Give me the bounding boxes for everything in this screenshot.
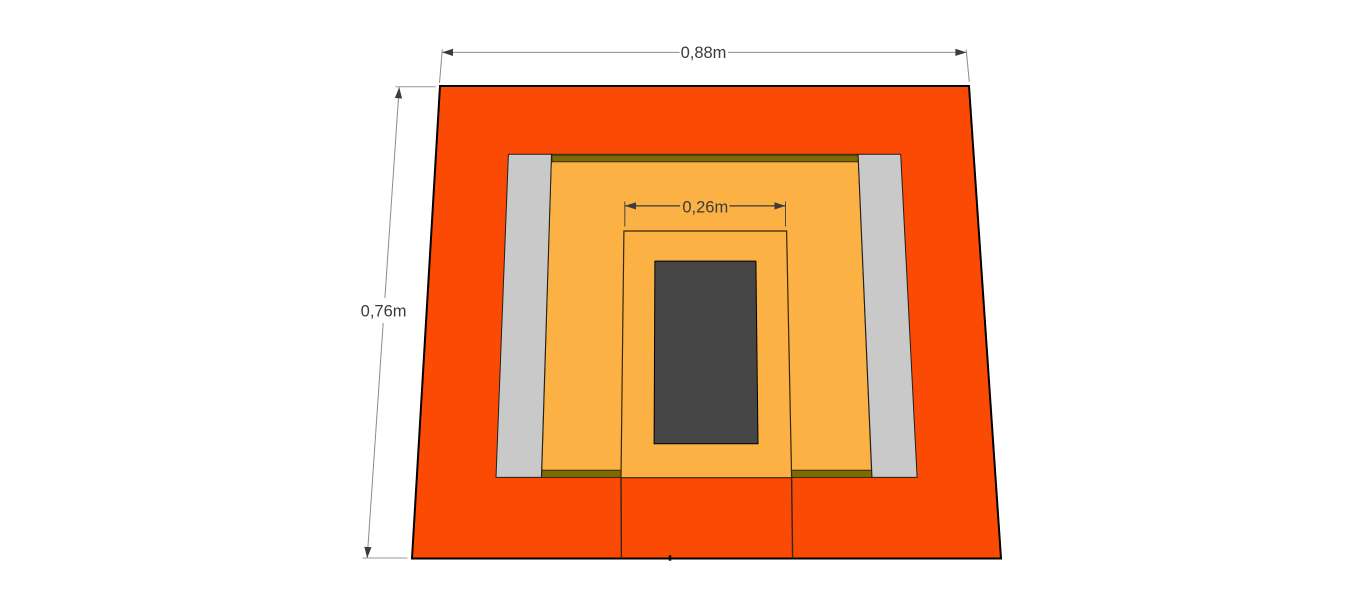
svg-text:0,76m: 0,76m [361,303,407,321]
svg-text:0,26m: 0,26m [682,198,728,216]
svg-text:0,88m: 0,88m [681,44,727,62]
